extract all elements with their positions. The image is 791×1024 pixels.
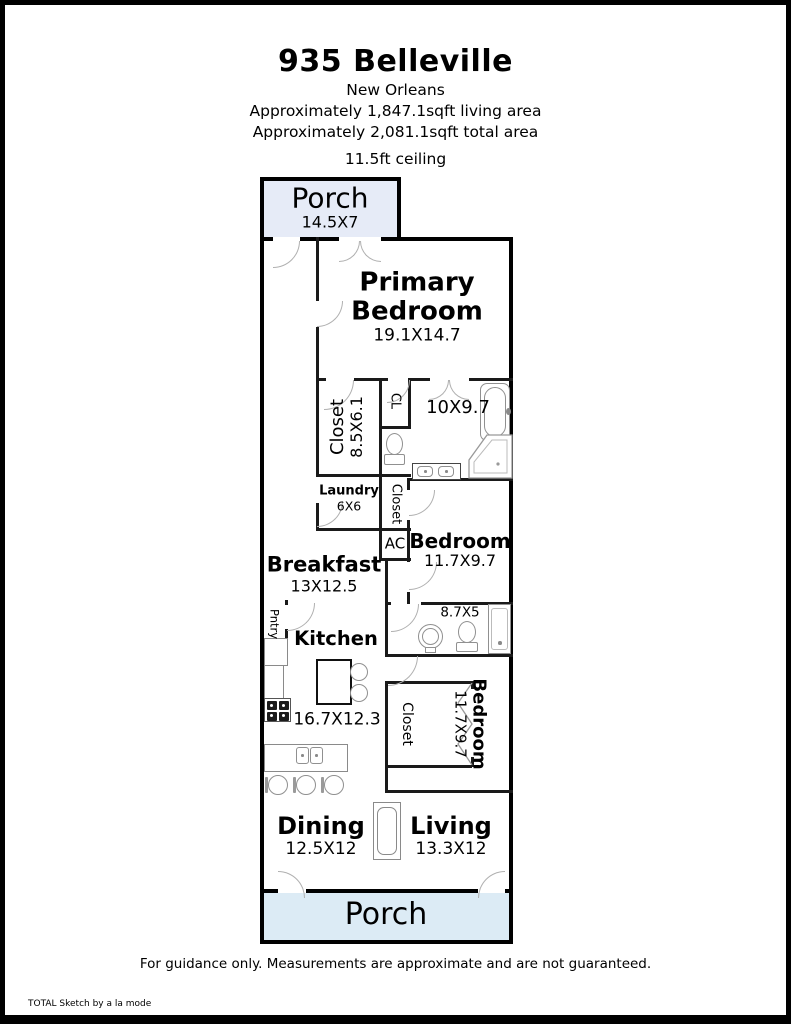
sink-drain xyxy=(301,754,304,757)
room-name: Closet xyxy=(328,396,348,458)
credit-text: TOTAL Sketch by a la mode xyxy=(28,999,151,1009)
wall xyxy=(385,559,388,654)
toilet-bowl xyxy=(386,433,403,455)
room-label-kitchen-dims: 16.7X12.3 xyxy=(293,710,380,729)
room-name: Porch xyxy=(291,182,368,213)
stool-back xyxy=(293,777,296,793)
room-name: Bedroom xyxy=(409,530,510,552)
room-name: Laundry xyxy=(319,485,379,500)
stove-burner xyxy=(279,712,289,721)
wall xyxy=(316,528,411,531)
room-dims: 12.5X12 xyxy=(277,840,365,859)
room-dims: 19.1X14.7 xyxy=(327,327,507,346)
wall xyxy=(379,426,411,429)
room-label-bedroom3: Bedroom 11.7X9.7 xyxy=(452,678,489,769)
kitchen-counter xyxy=(264,638,288,666)
stool-back xyxy=(265,777,268,793)
room-dims: 11.7X9.7 xyxy=(409,552,510,570)
wall xyxy=(316,474,411,477)
shower-drain xyxy=(498,641,502,645)
room-label-dining: Dining 12.5X12 xyxy=(277,813,365,859)
wall xyxy=(411,378,430,381)
kitchen-island xyxy=(316,659,352,705)
room-label-ac: AC xyxy=(385,536,405,553)
wall xyxy=(354,378,388,381)
floor-plan-page: 935 Belleville New Orleans Approximately… xyxy=(0,0,791,1024)
room-name: Living xyxy=(410,813,492,840)
room-label-bedroom2-closet: Closet xyxy=(388,484,403,525)
room-dims: 13X12.5 xyxy=(267,577,382,595)
city-subtitle: New Orleans xyxy=(0,80,791,101)
disclaimer-text: For guidance only. Measurements are appr… xyxy=(0,956,791,972)
room-label-porch-top: Porch 14.5X7 xyxy=(291,182,368,231)
corner-shower xyxy=(468,434,513,479)
stove xyxy=(264,698,291,722)
room-dims: 14.5X7 xyxy=(291,214,368,232)
room-label-bedroom2: Bedroom 11.7X9.7 xyxy=(409,530,510,570)
wall xyxy=(379,378,382,559)
fireplace-inner xyxy=(377,807,397,855)
pedestal-sink-base xyxy=(425,647,436,653)
stool-back xyxy=(321,777,324,793)
sink-drain xyxy=(445,470,448,473)
room-dims: 13.3X12 xyxy=(410,840,492,859)
room-label-bath2: 8.7X5 xyxy=(440,605,479,620)
room-name: Bedroom xyxy=(468,678,488,769)
wall xyxy=(469,378,513,381)
room-name: Breakfast xyxy=(267,553,382,577)
room-label-primary-bedroom: Primary Bedroom 19.1X14.7 xyxy=(327,268,507,345)
ceiling-height-text: 11.5ft ceiling xyxy=(0,149,791,170)
room-name: Dining xyxy=(277,813,365,840)
room-label-porch-bottom: Porch xyxy=(345,898,428,932)
bar-stool xyxy=(324,775,344,795)
living-area-text: Approximately 1,847.1sqft living area xyxy=(0,101,791,122)
page-title: 935 Belleville xyxy=(0,44,791,80)
wall xyxy=(407,592,410,604)
total-area-text: Approximately 2,081.1sqft total area xyxy=(0,122,791,143)
kitchen-counter xyxy=(264,665,284,699)
room-label-pantry: Pntry xyxy=(268,609,281,639)
wall xyxy=(316,237,319,301)
wall xyxy=(385,684,388,790)
room-dims: 11.7X9.7 xyxy=(452,678,469,769)
floor-plan: Porch 14.5X7 Primary Bedroom 19.1X14.7 C… xyxy=(260,177,513,944)
toilet-tank xyxy=(384,454,405,465)
room-label-breakfast: Breakfast 13X12.5 xyxy=(267,553,382,594)
bar-stool xyxy=(296,775,316,795)
room-label-primary-bath: 10X9.7 xyxy=(426,398,490,418)
toilet-tank xyxy=(456,642,478,652)
wall xyxy=(316,327,319,477)
sink-drain xyxy=(315,754,318,757)
tub-faucet xyxy=(506,408,511,415)
room-label-cl: CL xyxy=(387,393,402,409)
room-dims: 8.5X6.1 xyxy=(348,396,366,458)
stove-burner xyxy=(279,701,289,710)
room-label-bedroom3-closet: Closet xyxy=(398,702,414,746)
bar-stool xyxy=(350,663,368,681)
bar-stool xyxy=(350,684,368,702)
stove-burner xyxy=(267,712,277,721)
sink-drain xyxy=(424,470,427,473)
bar-stool xyxy=(268,775,288,795)
room-dims: 6X6 xyxy=(319,499,379,513)
room-label-living: Living 13.3X12 xyxy=(410,813,492,859)
pedestal-sink-basin xyxy=(422,628,439,645)
wall xyxy=(407,478,410,490)
wall xyxy=(385,790,513,793)
toilet-bowl xyxy=(458,621,476,643)
room-label-laundry: Laundry 6X6 xyxy=(319,485,379,514)
room-label-primary-closet: Closet 8.5X6.1 xyxy=(328,396,366,458)
room-label-kitchen: Kitchen xyxy=(294,628,378,650)
room-name: Primary Bedroom xyxy=(327,268,507,326)
stove-burner xyxy=(267,701,277,710)
header: 935 Belleville New Orleans Approximately… xyxy=(0,44,791,170)
